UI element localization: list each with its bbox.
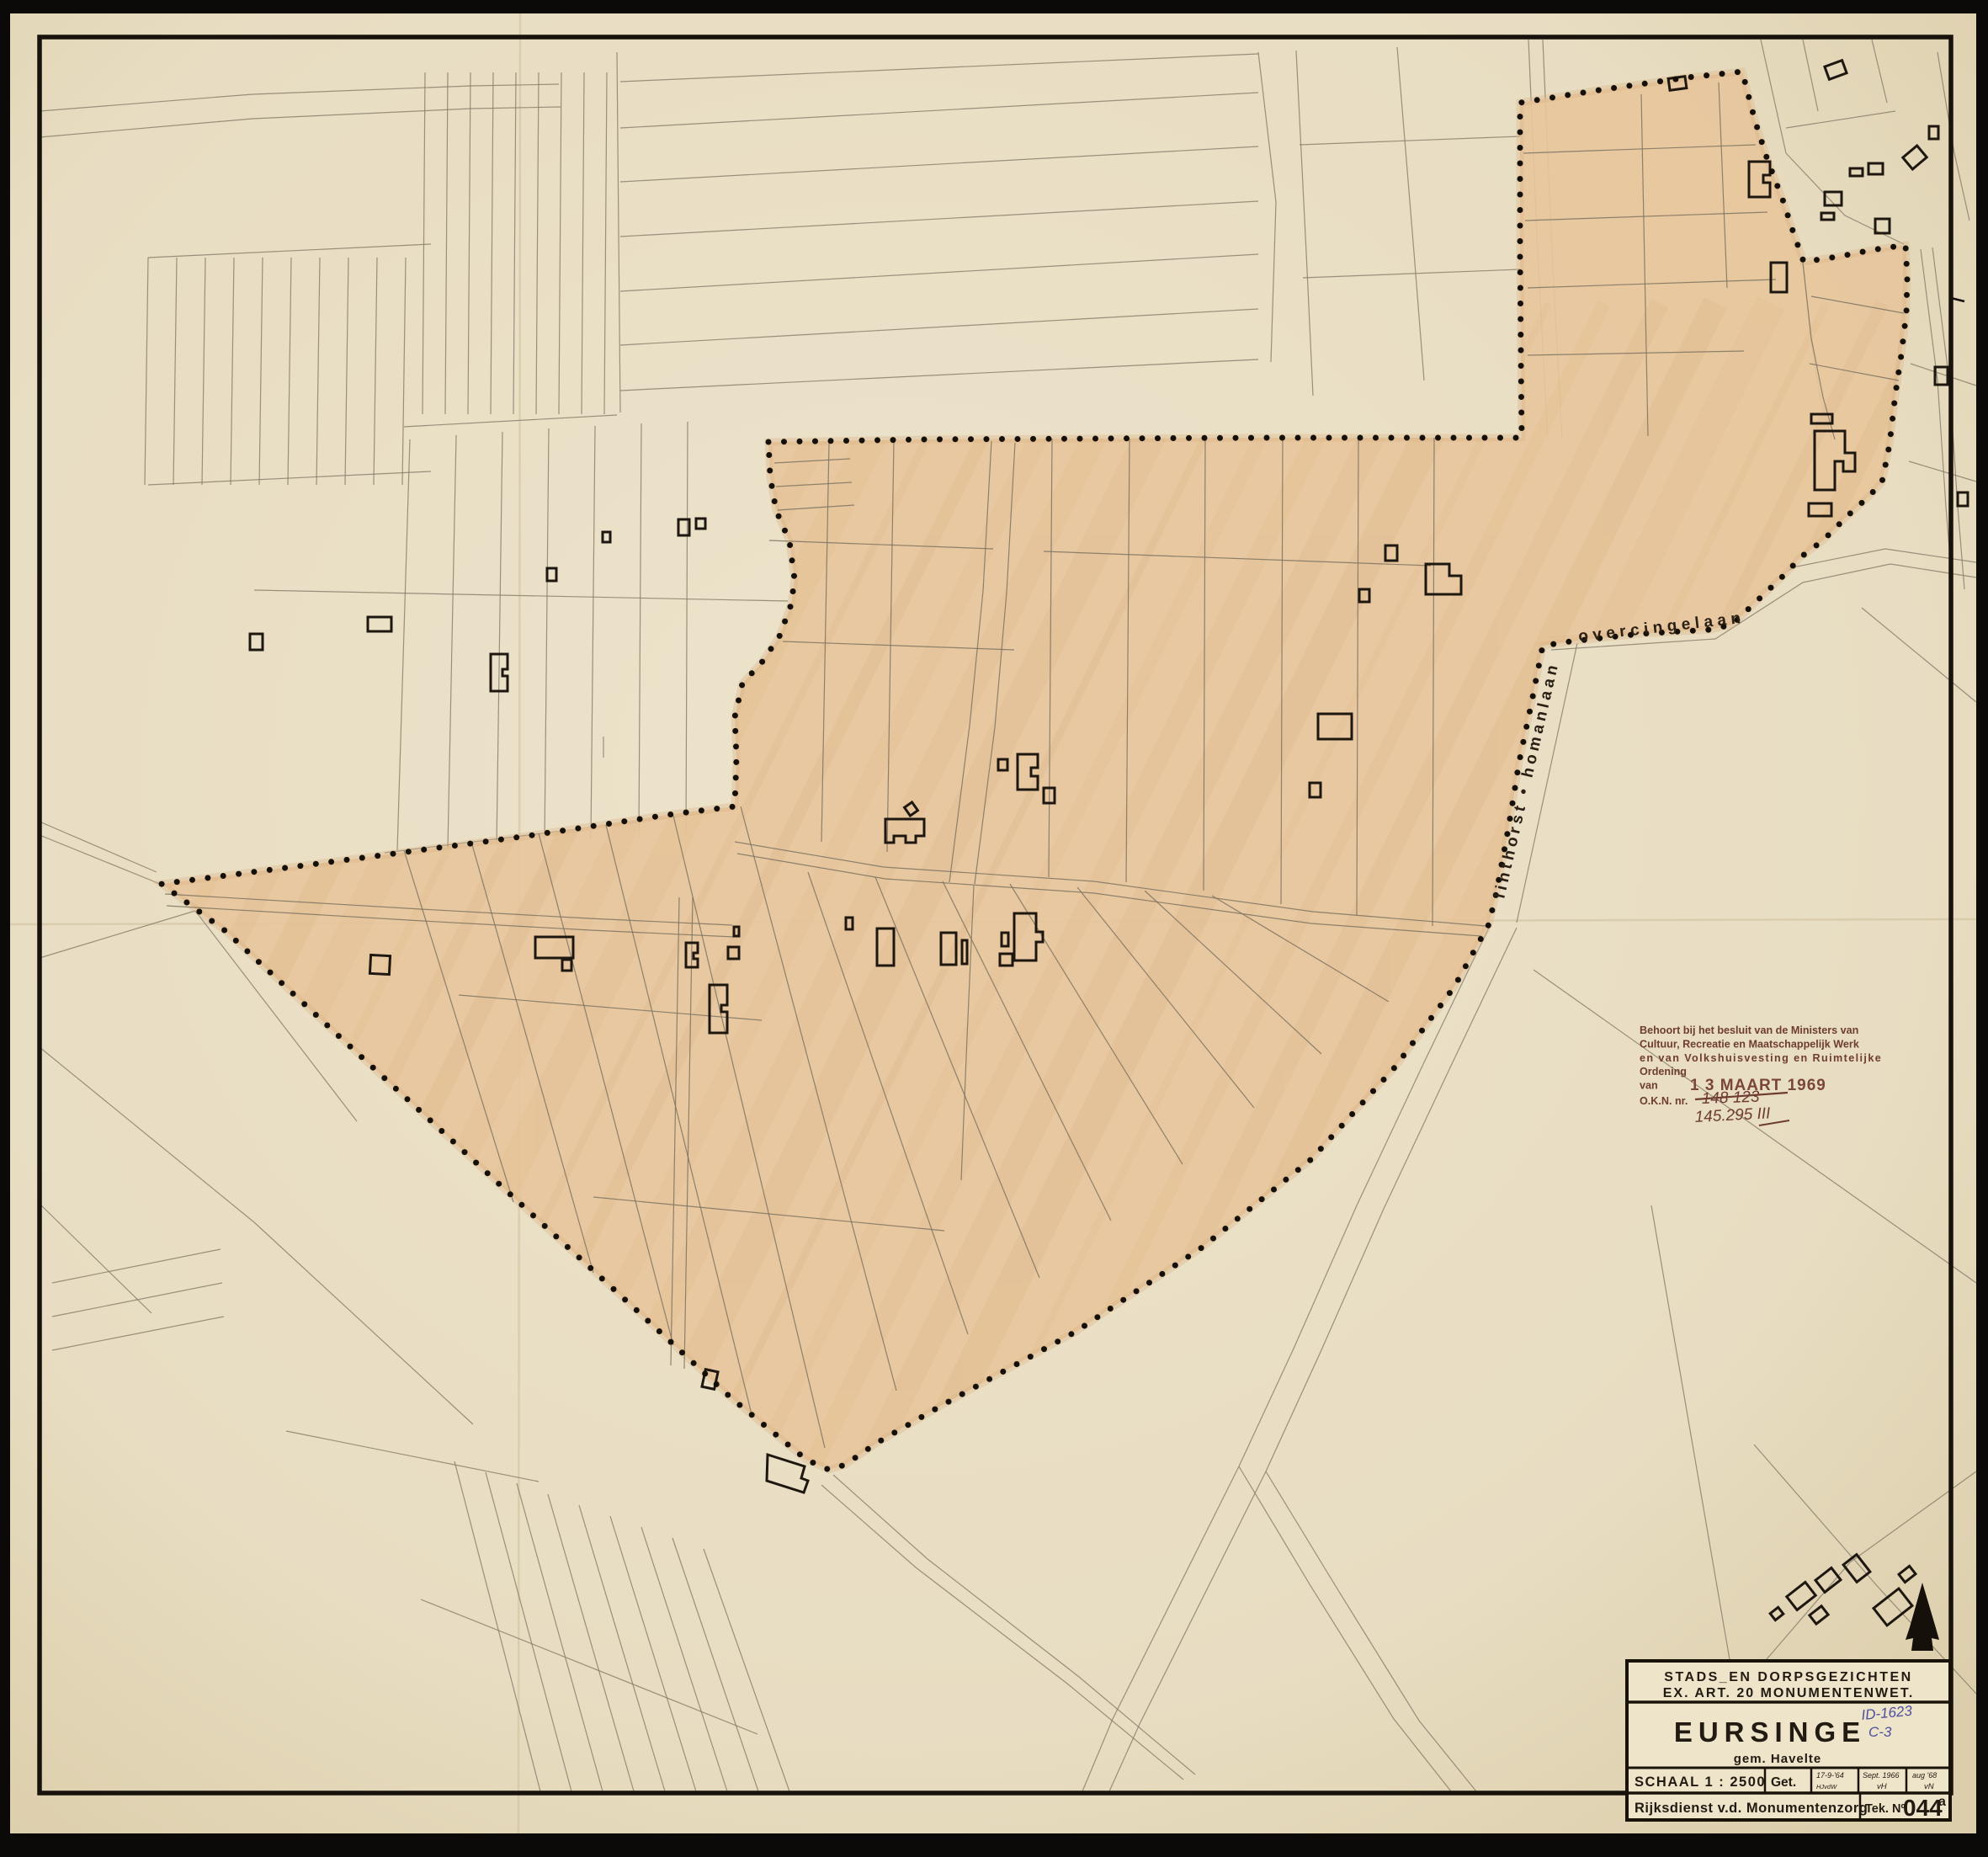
stamp-okn-label: O.K.N. nr. — [1640, 1095, 1688, 1107]
title-block-subtitle: gem. Havelte — [1734, 1752, 1822, 1766]
title-block-header-2: EX. ART. 20 MONUMENTENWET. — [1663, 1686, 1915, 1700]
drawing-number: 044 — [1903, 1795, 1943, 1821]
title-block-title: EURSINGE — [1674, 1716, 1866, 1748]
revision-1-initials: HJvdW — [1816, 1783, 1837, 1790]
scale-label: SCHAAL 1 : 2500 — [1635, 1775, 1766, 1790]
stamp-line-2: Cultuur, Recreatie en Maatschappelijk We… — [1640, 1039, 1860, 1051]
stamp-line-1: Behoort bij het besluit van de Ministers… — [1640, 1024, 1858, 1036]
annotation-blue-2: C-3 — [1868, 1724, 1892, 1740]
organization-label: Rijksdienst v.d. Monumentenzorg — [1635, 1801, 1868, 1816]
title-block-header-1: STADS_EN DORPSGEZICHTEN — [1664, 1670, 1912, 1684]
drawn-label: Get. — [1771, 1775, 1796, 1790]
map-photo: overcingelaan linthorst • homanlaan Beho… — [0, 0, 1988, 1857]
map-canvas: overcingelaan linthorst • homanlaan Beho… — [0, 0, 1988, 1857]
revision-3-date: aug '68 — [1912, 1771, 1937, 1780]
revision-2-date: Sept. 1966 — [1863, 1771, 1900, 1780]
drawing-number-suffix: a — [1938, 1795, 1946, 1809]
stamp-line-3: en van Volkshuisvesting en Ruimtelijke — [1640, 1052, 1882, 1064]
stamp-line-4: Ordening — [1640, 1066, 1687, 1077]
revision-3-initials: vN — [1924, 1782, 1934, 1791]
stamp-van-label: van — [1640, 1080, 1658, 1092]
drawing-number-label: Tek. Nº — [1865, 1802, 1906, 1816]
title-block: STADS_EN DORPSGEZICHTEN EX. ART. 20 MONU… — [1627, 1661, 1950, 1821]
revision-1-date: 17-9-'64 — [1816, 1771, 1844, 1780]
revision-2-initials: vH — [1877, 1782, 1887, 1791]
